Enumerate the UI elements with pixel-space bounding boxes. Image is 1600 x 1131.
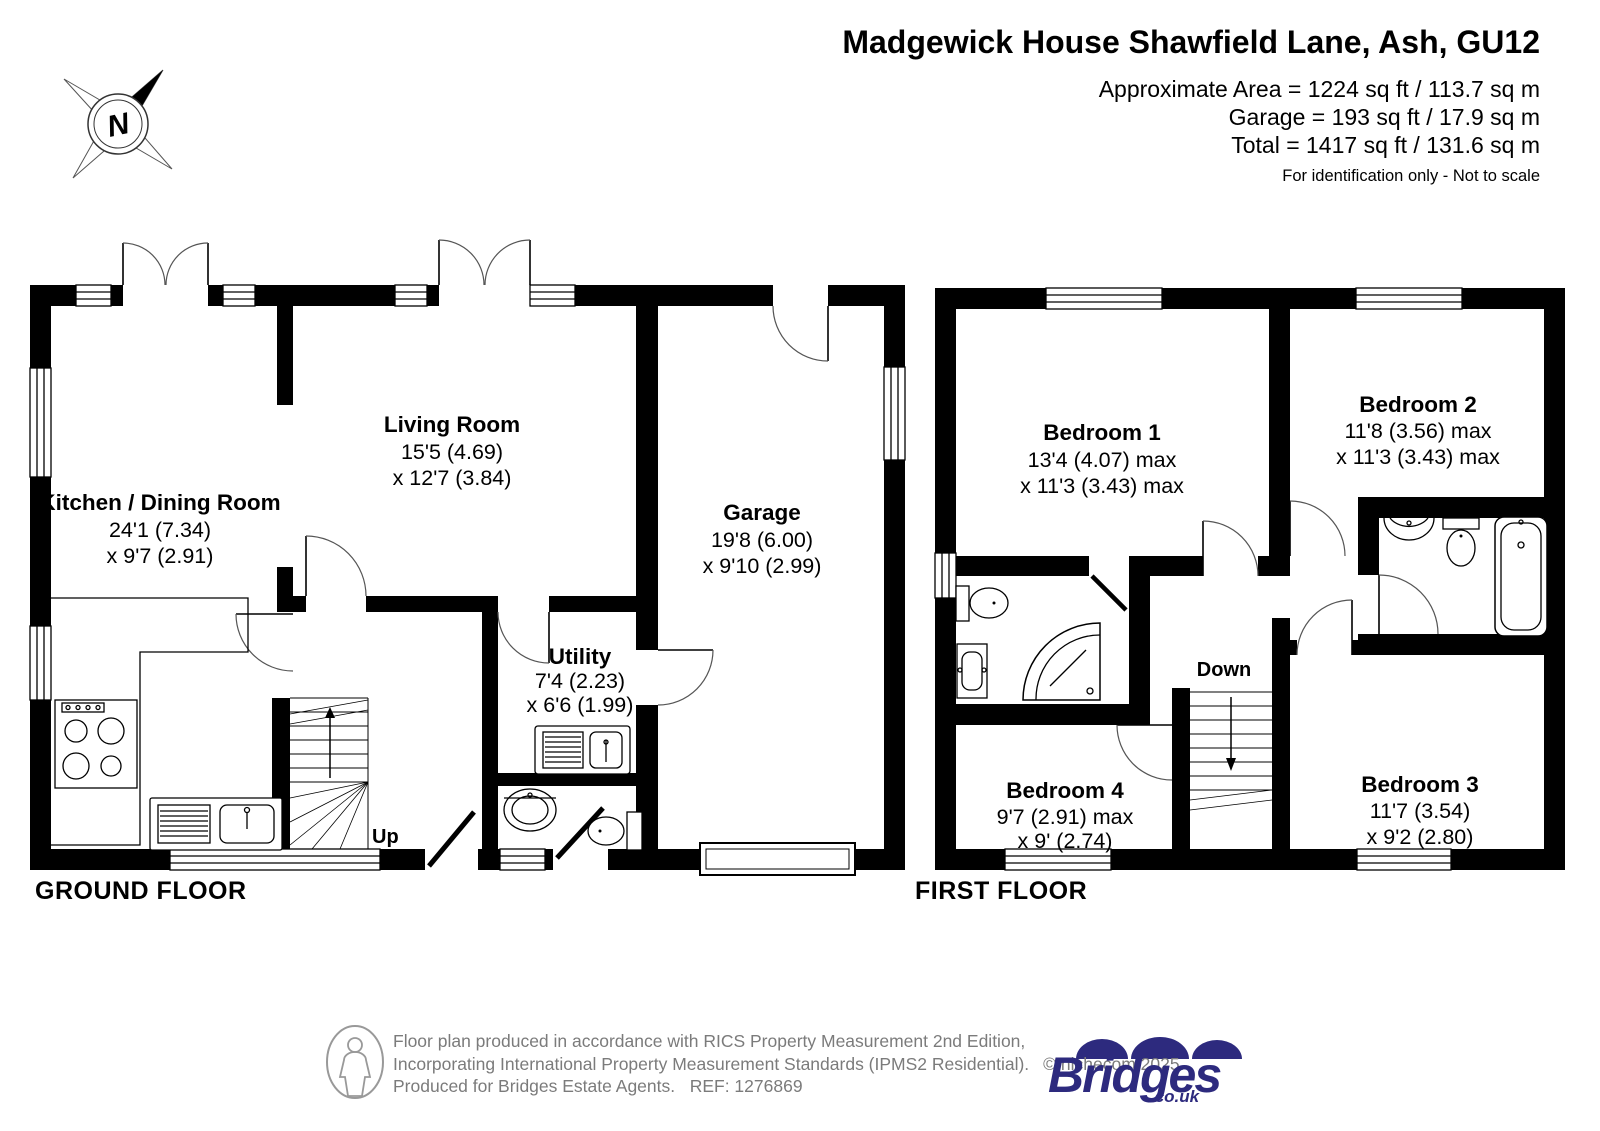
bathroom-fixtures <box>1384 511 1547 636</box>
room-dim: x 11'3 (3.43) max <box>1336 445 1500 469</box>
kitchen-fixtures <box>51 598 282 850</box>
french-doors <box>439 240 530 285</box>
footer-line-2-text: Incorporating International Property Mea… <box>393 1054 1029 1074</box>
room-dim: 7'4 (2.23) <box>535 669 625 693</box>
door-arc <box>306 536 366 596</box>
floorplan-page: Madgewick House Shawfield Lane, Ash, GU1… <box>0 0 1600 1131</box>
down-arrow-icon <box>1226 758 1236 771</box>
room-dim: 24'1 (7.34) <box>109 518 211 542</box>
stairs-up <box>290 698 368 849</box>
room-label: Kitchen / Dining Room <box>39 490 280 515</box>
room-label: Living Room <box>384 412 520 437</box>
door-arc <box>1379 575 1438 634</box>
window <box>170 849 380 870</box>
stairs-up-label: Up <box>372 826 399 848</box>
window <box>30 626 51 700</box>
hob-icon <box>55 700 137 788</box>
door-leaf <box>1092 576 1126 610</box>
room-label: Garage <box>723 500 801 525</box>
ensuite-fixtures <box>956 586 1100 700</box>
door-arc <box>1297 600 1352 655</box>
door-arc <box>498 612 549 663</box>
floorplan-drawing: N <box>0 0 1600 1131</box>
room-dim: 15'5 (4.69) <box>401 440 503 464</box>
room-dim: x 6'6 (1.99) <box>527 693 634 717</box>
window <box>223 285 255 306</box>
room-label: Bedroom 1 <box>1043 420 1161 445</box>
window <box>1357 849 1451 870</box>
first-floor-plan: Bedroom 1 13'4 (4.07) max x 11'3 (3.43) … <box>935 288 1565 870</box>
garage-door <box>700 843 855 875</box>
bridges-logo-suffix: .co.uk <box>1150 1087 1199 1107</box>
window <box>76 285 111 306</box>
room-dim: 9'7 (2.91) max <box>997 805 1134 829</box>
sink-icon <box>504 789 556 831</box>
person-icon <box>327 1026 383 1098</box>
door-arc <box>1290 501 1345 556</box>
room-label: Bedroom 3 <box>1361 772 1479 797</box>
first-floor-room-labels: Bedroom 1 13'4 (4.07) max x 11'3 (3.43) … <box>997 392 1501 853</box>
window <box>935 553 956 598</box>
ground-floor-label: GROUND FLOOR <box>35 877 247 906</box>
ground-floor-doors <box>123 240 828 866</box>
window <box>30 368 51 477</box>
door-leaf <box>429 812 474 866</box>
sink-icon <box>957 644 987 698</box>
room-dim: x 12'7 (3.84) <box>393 466 512 490</box>
stairs-down <box>1190 692 1272 810</box>
room-dim: x 11'3 (3.43) max <box>1020 474 1184 498</box>
room-dim: 11'7 (3.54) <box>1370 799 1471 823</box>
toilet-icon <box>956 586 1008 621</box>
room-dim: 11'8 (3.56) max <box>1344 419 1491 443</box>
door-arc <box>236 614 293 671</box>
window <box>395 285 427 306</box>
room-dim: x 9' (2.74) <box>1018 829 1113 853</box>
room-dim: 13'4 (4.07) max <box>1028 448 1177 472</box>
shower-icon <box>1023 623 1100 700</box>
window <box>1046 288 1162 309</box>
room-dim: x 9'7 (2.91) <box>107 544 214 568</box>
room-label: Bedroom 4 <box>1006 778 1124 803</box>
room-label: Utility <box>549 644 612 669</box>
room-dim: 19'8 (6.00) <box>711 528 813 552</box>
window <box>500 849 545 870</box>
room-dim: x 9'2 (2.80) <box>1367 825 1474 849</box>
door-arc <box>773 306 828 361</box>
window <box>884 367 905 460</box>
window <box>530 285 575 306</box>
french-doors <box>123 243 208 285</box>
stairs-down-label: Down <box>1197 659 1251 681</box>
compass-icon: N <box>64 70 172 178</box>
door-arc <box>1117 725 1172 780</box>
kitchen-sink-icon <box>150 798 282 850</box>
door-arc <box>658 650 713 705</box>
door-arc <box>1203 521 1258 576</box>
toilet-icon <box>1443 518 1479 566</box>
room-dim: x 9'10 (2.99) <box>703 554 822 578</box>
ground-floor-plan: Kitchen / Dining Room 24'1 (7.34) x 9'7 … <box>30 240 905 875</box>
ground-floor-room-labels: Kitchen / Dining Room 24'1 (7.34) x 9'7 … <box>39 412 821 848</box>
utility-appliance-icon <box>535 726 630 774</box>
window <box>1356 288 1462 309</box>
bathtub-icon <box>1495 517 1547 636</box>
room-label: Bedroom 2 <box>1359 392 1477 417</box>
first-floor-label: FIRST FLOOR <box>915 877 1087 906</box>
